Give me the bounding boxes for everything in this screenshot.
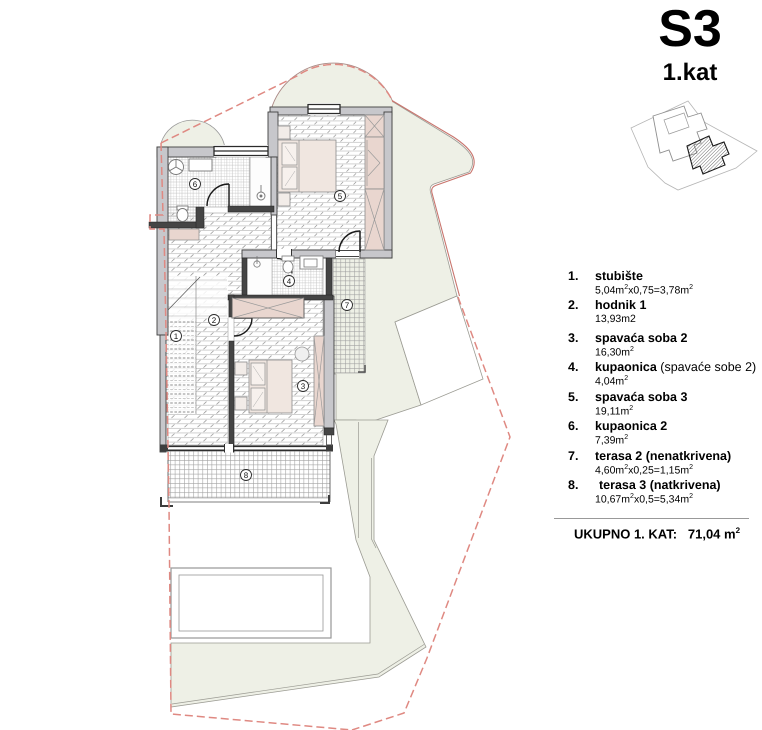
- svg-text:6: 6: [193, 180, 198, 189]
- svg-text:2: 2: [212, 316, 217, 325]
- svg-text:7: 7: [345, 301, 350, 310]
- svg-text:3: 3: [301, 382, 306, 391]
- svg-text:4: 4: [287, 277, 292, 286]
- svg-text:8: 8: [244, 471, 249, 480]
- svg-text:1: 1: [174, 332, 179, 341]
- svg-text:5: 5: [338, 192, 343, 201]
